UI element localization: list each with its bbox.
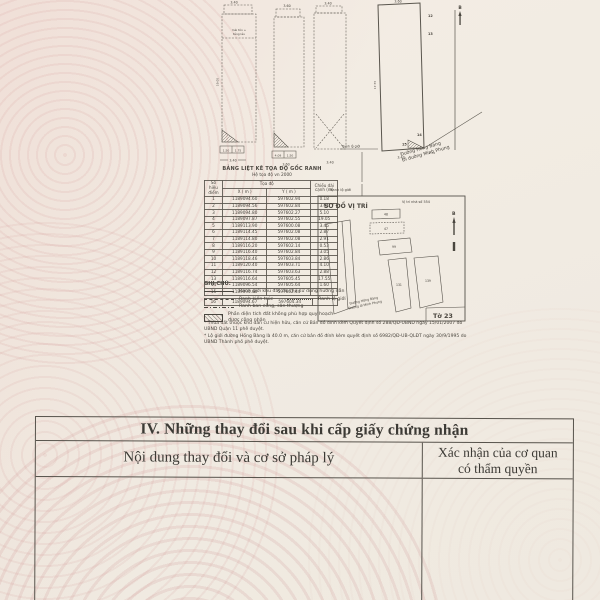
x-coordinate: 1189116.74 bbox=[222, 269, 266, 276]
dim-top-3: 3.40 bbox=[324, 1, 331, 5]
y-coordinate: 597603.63 bbox=[267, 269, 311, 276]
x-coordinate: 1189094.56 bbox=[222, 203, 266, 210]
legend-label: Ranh ban công, sân thượng bbox=[239, 304, 304, 310]
dotted-line-symbol bbox=[287, 299, 313, 300]
point-number: 12 bbox=[205, 269, 223, 276]
point-15: 15 bbox=[402, 142, 407, 146]
y-coordinate: 597602.84 bbox=[267, 249, 311, 256]
north-label: B bbox=[458, 5, 462, 11]
x-coordinate: 1189094.60 bbox=[222, 196, 266, 203]
dim-bottom-1: 3.40 bbox=[229, 158, 236, 162]
x-coordinate: 1189097.87 bbox=[222, 216, 266, 223]
siteplan-title: SƠ ĐỒ VỊ TRÍ bbox=[324, 201, 369, 210]
footnote-2: * Lộ giới đường Hồng Bàng là 40.0 m, căn… bbox=[204, 334, 472, 346]
point-number: 4 bbox=[205, 216, 223, 223]
sheet-number: Tờ 23 bbox=[433, 312, 453, 320]
site-location-sketch: Ranh lộ giới SƠ ĐỒ VỊ TRÍ Vị trí nhà số … bbox=[312, 184, 472, 326]
y-coordinate: 597602.08 bbox=[267, 236, 311, 243]
section-iv-empty-body bbox=[35, 476, 573, 600]
coordinate-table-title: BẢNG LIỆT KÊ TỌA ĐỘ GỐC RANH bbox=[202, 166, 342, 172]
siteplan-north-label: B bbox=[452, 211, 456, 217]
column-header-confirmation: Xác nhận của cơ quan có thẩm quyền bbox=[422, 443, 573, 479]
siteplan-ranh-lo-gioi-label: Ranh lộ giới bbox=[330, 188, 351, 192]
dashdot-line-symbol bbox=[204, 307, 234, 308]
legend-label: Ranh kiến trúc bbox=[239, 297, 273, 303]
dim-box1-a: 1.50 bbox=[223, 149, 230, 153]
dim-top-2: 3.60 bbox=[283, 4, 290, 8]
section-iv-title: IV. Những thay đổi sau khi cấp giấy chứn… bbox=[36, 417, 573, 442]
plot-number-47: 47 bbox=[384, 227, 388, 231]
dashed-line-symbol bbox=[204, 299, 234, 300]
dim-bottom-3: 3.40 bbox=[326, 160, 333, 164]
col-header-coords: Tọa độ bbox=[222, 181, 311, 189]
ranh-lo-gioi-label: Ranh lộ giới bbox=[342, 145, 360, 149]
column-header-changes: Nội dung thay đổi và cơ sở pháp lý bbox=[36, 441, 422, 475]
dim-box2-b: 1.50 bbox=[287, 154, 294, 158]
roof-label-line2: tầng lầu bbox=[233, 32, 245, 36]
col-header-y: Y ( m ) bbox=[267, 188, 311, 196]
point-number: 1 bbox=[205, 196, 223, 203]
x-coordinate: 1189114.80 bbox=[222, 236, 266, 243]
y-coordinate: 597602.94 bbox=[267, 196, 311, 203]
changes-cell-empty bbox=[35, 477, 422, 600]
section-iv-table: IV. Những thay đổi sau khi cấp giấy chứn… bbox=[34, 416, 574, 600]
x-coordinate: 1189116.40 bbox=[222, 249, 266, 256]
dim-box2-a: 4.09 bbox=[275, 154, 282, 158]
y-coordinate: 597602.55 bbox=[267, 216, 311, 223]
dim-top-1: 3.40 bbox=[230, 0, 237, 4]
plot-number-99: 99 bbox=[392, 245, 396, 249]
section-iv-header-row: Nội dung thay đổi và cơ sở pháp lý Xác n… bbox=[36, 440, 573, 478]
dim-top-4: 3.60 bbox=[394, 0, 401, 4]
plot-number-131: 131 bbox=[396, 283, 402, 287]
plot-number-48: 48 bbox=[384, 213, 388, 217]
point-number: 9 bbox=[205, 249, 223, 256]
point-13: 13 bbox=[428, 32, 433, 36]
point-number: 7 bbox=[205, 236, 223, 243]
dim-box1-b: 1.75 bbox=[235, 149, 242, 153]
plot-number-139: 139 bbox=[425, 279, 431, 283]
point-14: 14 bbox=[417, 133, 422, 137]
y-coordinate: 597602.84 bbox=[267, 203, 311, 210]
col-header-point: Số hiệu điểm bbox=[205, 181, 223, 197]
side-dim-strip4: 17.55 bbox=[373, 81, 377, 90]
col-header-x: X ( m ) bbox=[222, 188, 266, 196]
solid-line-symbol bbox=[204, 291, 234, 292]
confirmation-cell-empty bbox=[421, 479, 573, 600]
side-dim-strip1: 19.05 bbox=[216, 78, 220, 87]
point-number: 2 bbox=[205, 203, 223, 210]
scanned-certificate-page: 3.40 3.60 3.40 3.60 mái tôn + tầng lầu 1… bbox=[0, 0, 600, 600]
point-12: 12 bbox=[428, 14, 433, 18]
coordinate-table-subtitle: Hệ tọa độ vn 2000 bbox=[202, 173, 342, 178]
siteplan-location-label: Vị trí nhà số 554 bbox=[402, 200, 430, 204]
